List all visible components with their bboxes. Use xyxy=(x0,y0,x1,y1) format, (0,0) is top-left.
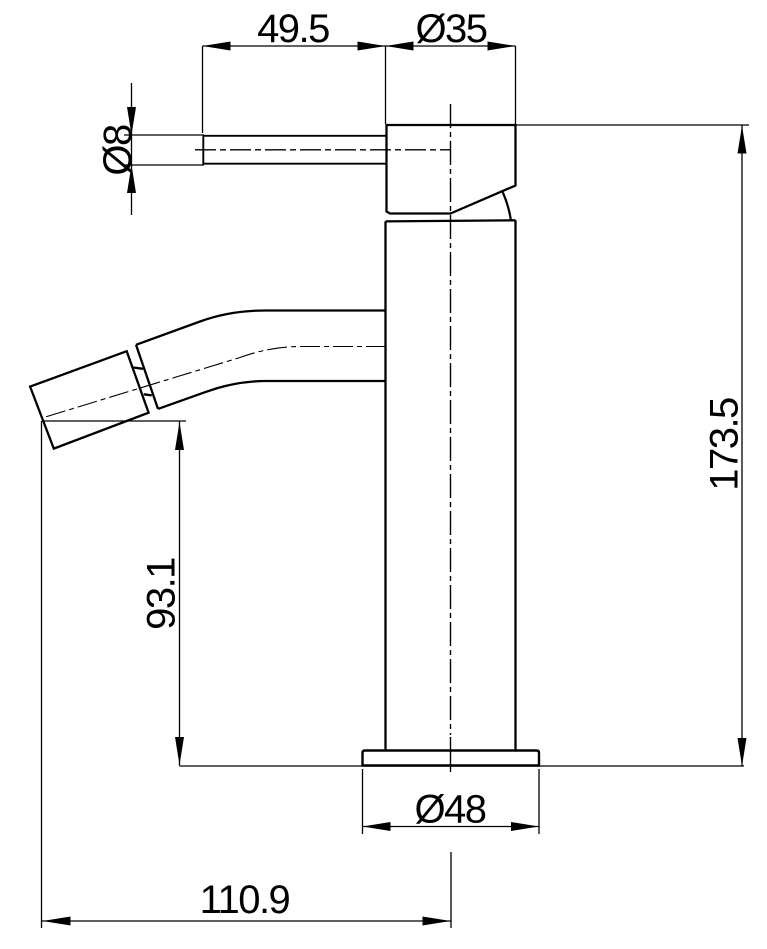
svg-text:173.5: 173.5 xyxy=(703,398,747,491)
svg-text:49.5: 49.5 xyxy=(257,7,329,51)
svg-text:93.1: 93.1 xyxy=(140,558,184,630)
svg-text:Ø35: Ø35 xyxy=(415,7,486,51)
svg-text:Ø48: Ø48 xyxy=(414,788,485,832)
svg-text:Ø8: Ø8 xyxy=(96,125,140,176)
svg-text:110.9: 110.9 xyxy=(200,878,290,922)
